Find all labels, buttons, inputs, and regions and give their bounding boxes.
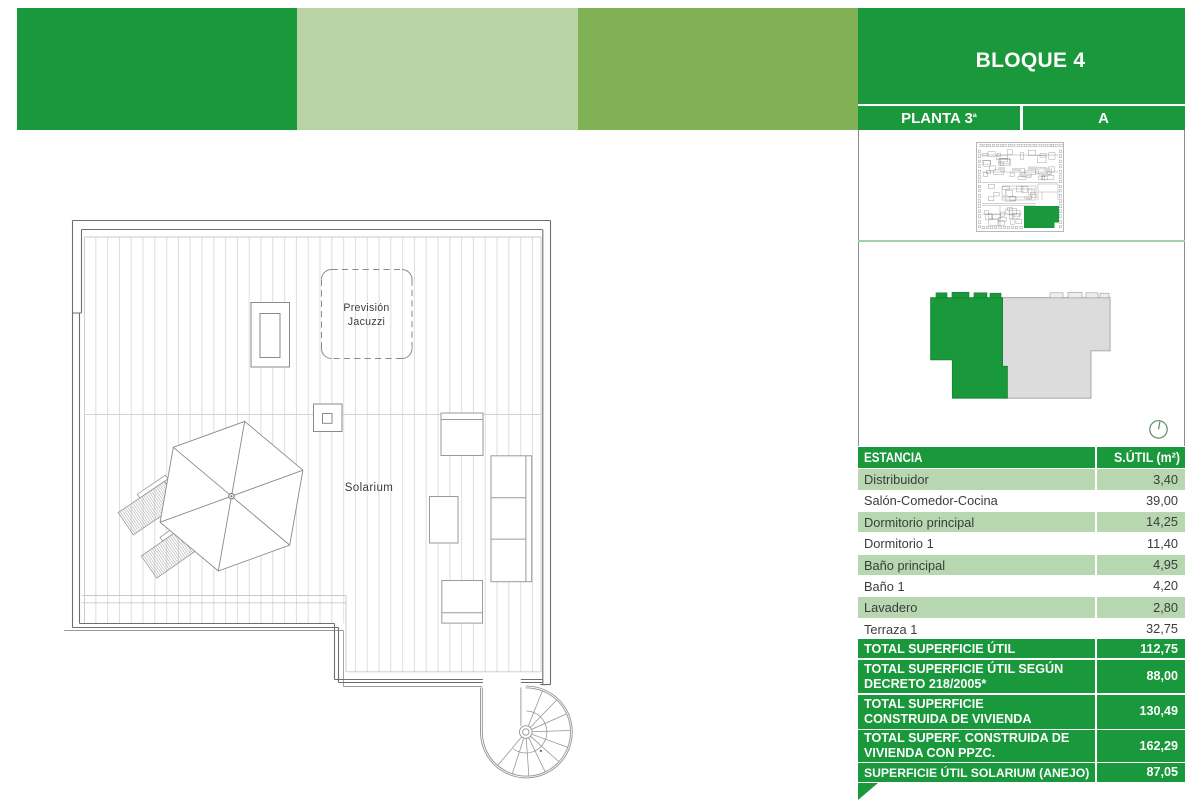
svg-text:Previsión: Previsión (343, 302, 389, 314)
svg-text:Solarium: Solarium (345, 482, 394, 494)
svg-text:Jacuzzi: Jacuzzi (348, 316, 385, 328)
